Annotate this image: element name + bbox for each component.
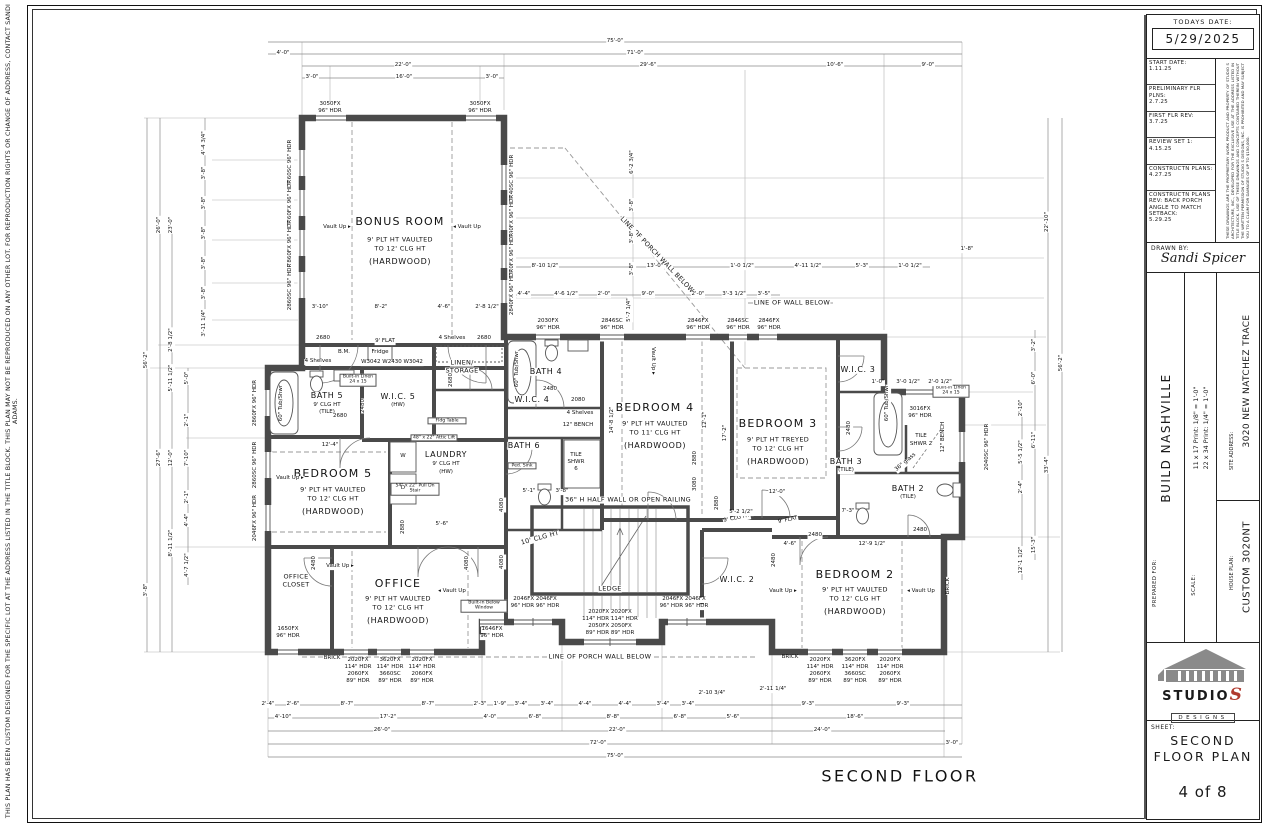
plan-label: 5'-0" <box>185 371 191 385</box>
plan-label: W3042 W2430 W3042 <box>361 360 424 366</box>
plan-label: 2480 <box>808 533 823 539</box>
plan-label: 2860FX 96" HDR <box>288 219 294 266</box>
plan-label: 3'-8" <box>630 230 636 244</box>
plan-label: Fldg Table <box>428 417 467 424</box>
plan-label: 3'-3 1/2" <box>722 292 747 298</box>
plan-label: 96" HDR <box>686 326 710 332</box>
plan-label: 2480 <box>312 556 318 571</box>
plan-label: 2'-8 1/2" <box>169 328 175 353</box>
plan-label: Ped. Sink <box>508 462 537 469</box>
revision-section: START DATE:1.11.25PRELIMINARY FLR PLNS:2… <box>1147 59 1259 243</box>
plan-label: 2860SC 96" HDR <box>288 263 294 311</box>
plan-label: 2050FX 2050FX <box>588 624 633 630</box>
plan-label: 3620FX <box>844 658 866 664</box>
plan-label: 71'-0" <box>626 51 644 57</box>
plan-label: 96" HDR 96" HDR <box>510 604 560 610</box>
plan-label: 9'-0" <box>921 63 935 69</box>
plan-label: Vault Up ▸ <box>769 589 798 595</box>
plan-label: Vault Up ▸ <box>276 476 305 482</box>
plan-label: BEDROOM 5 <box>293 468 373 480</box>
plan-label: 6 <box>574 467 579 473</box>
plan-label: 48" x 22" Attic Lift <box>411 434 458 441</box>
plan-label: 22'-0" <box>608 728 626 734</box>
plan-label: LAUNDRY <box>424 451 467 459</box>
plan-label: 2'-8 1/2" <box>475 305 500 311</box>
plan-label: 3'-10" <box>311 305 329 311</box>
revision-row: START DATE:1.11.25 <box>1147 59 1215 85</box>
plan-label: 2480 <box>543 387 558 393</box>
plan-label: 2880 <box>715 496 721 511</box>
revision-row: PRELIMINARY FLR PLNS:2.7.25 <box>1147 85 1215 111</box>
plan-label: 89" HDR <box>378 679 402 685</box>
plan-label: 75'-0" <box>606 39 624 45</box>
plan-label: 9'-3" <box>801 702 815 708</box>
plan-label: 5'-2 1/2" <box>729 510 754 516</box>
plan-label: 96" HDR <box>757 326 781 332</box>
plan-label: 12'-1 1/2" <box>1019 546 1025 574</box>
plan-label: 2046FX 2046FX <box>662 597 707 603</box>
plan-label: 4'-0" <box>483 715 497 721</box>
plan-label: 29'-6" <box>639 63 657 69</box>
plan-label: 12'-4" <box>321 443 339 449</box>
todays-date-value: 5/29/2025 <box>1152 28 1254 50</box>
plan-label: 2046FX 2046FX <box>513 597 558 603</box>
plan-label: TO 11' CLG HT <box>629 430 681 437</box>
plan-label: 5'-6" <box>435 522 449 528</box>
plan-label: 60" Tub/Shwr <box>279 384 285 421</box>
plan-label: 9' PLT HT VAULTED <box>367 237 434 244</box>
plan-label: 9' FLAT <box>375 339 396 345</box>
plan-label: 3'-8" <box>202 166 208 180</box>
plan-label: BATH 4 <box>529 368 562 376</box>
title-block: TODAYS DATE: 5/29/2025 START DATE:1.11.2… <box>1146 14 1260 820</box>
plan-label: 3'-8" <box>555 489 569 495</box>
plan-label: LINE OF WALL BELOW <box>753 300 830 307</box>
plan-label: TO 12' CLG HT <box>829 596 881 603</box>
plan-label: BATH 2 <box>891 485 924 493</box>
plan-label: CLOSET <box>282 582 310 589</box>
site-plan-cell: 3020 NEW NATCHEZ TRACE SITE ADDRESS: CUS… <box>1217 273 1259 643</box>
plan-label: 22'-0" <box>394 63 412 69</box>
plan-label: 4'-7 1/2" <box>185 553 191 578</box>
plan-label: SECOND FLOOR <box>821 769 979 786</box>
plan-label: 72'-0" <box>589 741 607 747</box>
plan-label: BEDROOM 2 <box>815 569 895 581</box>
plan-label: 4080 <box>500 498 506 513</box>
plan-label: 12'-1" <box>703 411 709 429</box>
plan-label: W.I.C. 2 <box>719 576 755 584</box>
plan-label: 22'-10" <box>1045 211 1051 232</box>
plan-label: 6'-0" <box>1032 371 1038 385</box>
plan-label: SHWR 2 <box>909 442 932 448</box>
plan-label: BRICK <box>781 655 799 661</box>
plan-label: 26'-0" <box>373 728 391 734</box>
logo-house-icon <box>1158 643 1248 683</box>
plan-label: 96" HDR <box>480 634 504 640</box>
plan-label: 17'-2" <box>379 715 397 721</box>
plan-label: 13'-0" <box>646 264 664 270</box>
plan-label: 9' PLT HT VAULTED <box>822 587 889 594</box>
plan-label: 114" HDR <box>408 665 436 671</box>
plan-label: 2846FX <box>687 319 709 325</box>
plan-label: 1650FX <box>277 627 299 633</box>
plan-label: 12" BENCH <box>941 421 947 453</box>
plan-label: 2046FX 96" HDR <box>253 494 259 541</box>
plan-label: 3'-0" <box>485 75 499 81</box>
plan-label: 3660SC <box>379 672 401 678</box>
plan-label: 8'-11 1/2" <box>169 529 175 557</box>
plan-label: 36" H HALF WALL OR OPEN RAILING <box>565 497 692 504</box>
plan-label: 3'-11 1/4" <box>202 309 208 337</box>
plan-label: Vault Up ▸ <box>326 564 355 570</box>
plan-label: (HARDWOOD) <box>368 258 431 266</box>
plan-label: 2680 <box>316 336 331 342</box>
scale-label: SCALE: <box>1191 574 1197 595</box>
plan-label: 27'-6" <box>157 449 163 467</box>
todays-date-label: TODAYS DATE: <box>1147 18 1259 26</box>
site-address-cell: 3020 NEW NATCHEZ TRACE SITE ADDRESS: <box>1217 273 1259 501</box>
plan-label: 1'-0" <box>871 380 885 386</box>
plan-label: 2480 <box>847 421 853 436</box>
plan-label: 2840FX 96" HDR <box>510 268 516 315</box>
plan-label: OFFICE <box>283 574 309 581</box>
plan-label: Vault Up ▸ <box>649 347 655 376</box>
revision-row: FIRST FLR REV:3.7.25 <box>1147 112 1215 138</box>
plan-label: 96" HDR <box>318 109 342 115</box>
plan-label: (HW) <box>391 403 406 409</box>
plan-label: 2846SC <box>601 319 623 325</box>
plan-label: 89" HDR 89" HDR <box>585 631 635 637</box>
plan-label: ◂ Vault Up <box>907 589 936 595</box>
plan-label: 4'-10" <box>274 715 292 721</box>
plan-label: 2020FX 2020FX <box>588 610 633 616</box>
plan-label: 4'-6 1/2" <box>554 292 579 298</box>
plan-label: 2'-1" <box>185 413 191 427</box>
plan-label: 9' CLG HT <box>432 462 460 468</box>
plan-label: 2480 <box>361 399 367 414</box>
plan-label: 60" Tub/Shwr <box>515 350 521 387</box>
plan-label: 4'-6" <box>437 305 451 311</box>
plan-label: 8'-8" <box>606 715 620 721</box>
plan-label: W.I.C. 4 <box>514 396 550 404</box>
plan-label: 9' CLG HT <box>313 403 341 409</box>
plan-label: 2'-4" <box>1019 480 1025 494</box>
project-info-section: BUILD NASHVILLE PREPARED FOR: 11 x 17 Pr… <box>1147 273 1259 643</box>
plan-label: OFFICE <box>374 578 421 590</box>
plan-label: 10'-6" <box>826 63 844 69</box>
plan-label: 15'-3" <box>1032 536 1038 554</box>
plan-label: 6'-2 3/4" <box>630 150 636 175</box>
revision-row: REVIEW SET 1:4.15.25 <box>1147 138 1215 164</box>
plan-label: 2020FX <box>809 658 831 664</box>
plan-label: 18'-6" <box>846 715 864 721</box>
plan-label: 3'-8" <box>202 226 208 240</box>
plan-label: 4'-4 3/4" <box>202 131 208 156</box>
plan-label: 2'-1" <box>185 490 191 504</box>
plan-label: 1'-8" <box>960 247 974 253</box>
plan-label: LINE OF PORCH WALL BELOW <box>619 215 696 294</box>
sheet-section: SHEET: SECOND FLOOR PLAN 4 of 8 <box>1147 721 1259 819</box>
plan-label: 2'-6" <box>286 702 300 708</box>
plan-label: 4 Shelves <box>566 411 594 417</box>
plan-label: 5'-7 1/4" <box>627 298 633 323</box>
plan-label: 9' FLAT <box>777 516 799 526</box>
plan-label: 9' PLT HT VAULTED <box>300 487 367 494</box>
plan-label: Built-in Linen 24 x 15 <box>340 374 377 387</box>
plan-label: (HARDWOOD) <box>366 617 429 625</box>
plan-label: 3'-0" <box>305 75 319 81</box>
plan-label: 12'-0" <box>169 449 175 467</box>
plan-label: W.I.C. 3 <box>840 366 876 374</box>
plan-label: BATH 5 <box>310 392 343 400</box>
plan-label: 2680 <box>449 373 455 388</box>
plan-label: 114" HDR <box>876 665 904 671</box>
plan-label: 2480 <box>913 528 928 534</box>
plan-label: 3'-4" <box>681 702 695 708</box>
plan-label: 2'-3" <box>473 702 487 708</box>
plan-label: 2080 <box>571 398 586 404</box>
prepared-for-cell: BUILD NASHVILLE PREPARED FOR: <box>1147 273 1185 643</box>
plan-label: 3660SC <box>844 672 866 678</box>
copyright-note: THESE DRAWINGS ARE THE PROPRIETARY WORK … <box>1225 63 1249 239</box>
plan-label: B.M. <box>337 350 350 356</box>
plan-label: 89" HDR <box>843 679 867 685</box>
plan-label: TO 12' CLG HT <box>307 496 359 503</box>
plan-label: LINE OF PORCH WALL BELOW <box>548 654 652 661</box>
plan-label: 3'-8" <box>630 198 636 212</box>
plan-label: BEDROOM 3 <box>738 418 818 430</box>
plan-label: 24'-0" <box>813 728 831 734</box>
drawn-by-name: Sandi Spicer <box>1147 251 1259 266</box>
plan-label: 2060FX <box>411 672 433 678</box>
plan-label: 12'-0" <box>768 490 786 496</box>
plan-label: 5'-1" <box>522 489 536 495</box>
revision-row: CONSTRUCTN PLANS:4.27.25 <box>1147 165 1215 191</box>
plan-label: SHWR <box>567 460 585 466</box>
plan-label: 23'-0" <box>169 216 175 234</box>
plan-label: 96" HDR <box>536 326 560 332</box>
plan-label: 26'-0" <box>157 216 163 234</box>
plan-label: 3'-8" <box>144 583 150 597</box>
plan-label: 14'-8 1/2" <box>610 406 616 434</box>
plan-label: 54" x 22" Pull Dn Stair <box>391 483 440 496</box>
scale-line1: 11 x 17 Print: 1/8" = 1'-0" <box>1192 387 1200 470</box>
plan-label: 2'-10" <box>1019 399 1025 417</box>
plan-label: W.I.C. 5 <box>380 393 416 401</box>
plan-label: BEDROOM 4 <box>615 402 695 414</box>
plan-label: 4080 <box>465 556 471 571</box>
plan-label: 36" glass <box>894 452 918 473</box>
plan-label: 114" HDR 114" HDR <box>582 617 639 623</box>
plan-label: 2'-0" <box>597 292 611 298</box>
sheet-name: SECOND FLOOR PLAN <box>1147 733 1259 764</box>
plan-label: 12" BENCH <box>562 423 594 429</box>
logo-s-letter: S <box>1230 685 1244 705</box>
site-address-label: SITE ADDRESS: <box>1229 432 1235 470</box>
drawn-by-section: DRAWN BY: Sandi Spicer <box>1147 243 1259 273</box>
todays-date-section: TODAYS DATE: 5/29/2025 <box>1147 15 1259 59</box>
plan-label: 3'-4" <box>656 702 670 708</box>
plan-label: TO 12' CLG HT <box>752 446 804 453</box>
plan-label: 2846FX <box>758 319 780 325</box>
plan-label: TO 12' CLG HT <box>374 246 426 253</box>
prepared-for-label: PREPARED FOR: <box>1152 559 1158 607</box>
plan-label: 4'-4" <box>578 702 592 708</box>
plan-label: 75'-0" <box>606 754 624 760</box>
plan-label: 114" HDR <box>841 665 869 671</box>
house-plan-value: CUSTOM 3020NT <box>1242 521 1253 613</box>
plan-label: 3'-4" <box>540 702 554 708</box>
plan-label: (HARDWOOD) <box>823 608 886 616</box>
plan-label: (HW) <box>439 470 454 476</box>
plan-label: 3'-8" <box>202 196 208 210</box>
scale-cell: 11 x 17 Print: 1/8" = 1'-0" 22 x 34 Prin… <box>1185 273 1217 643</box>
plan-label: 96" HDR <box>468 109 492 115</box>
plan-label: 4080 <box>500 555 506 570</box>
plan-label: 114" HDR <box>806 665 834 671</box>
plan-label: 2680 <box>333 414 348 420</box>
plan-label: 96" HDR <box>600 326 624 332</box>
plan-label: 96" HDR 96" HDR <box>659 604 709 610</box>
plan-label: 2'-10 3/4" <box>698 691 726 697</box>
plan-label: Vault Up ▸ <box>323 225 352 231</box>
sheet-label: SHEET: <box>1151 724 1175 731</box>
plan-label: 2860FX 96" HDR <box>253 379 259 426</box>
plan-label: (HARDWOOD) <box>623 442 686 450</box>
plan-label: TO 12' CLG HT <box>372 605 424 612</box>
plan-label: 9'-0" <box>641 292 655 298</box>
plan-label: 2880 <box>693 451 699 466</box>
plan-label: 2680 <box>477 336 492 342</box>
plan-label: 9' PLT HT VAULTED <box>622 421 689 428</box>
plan-label: 2'-0 1/2" <box>928 380 953 386</box>
plan-label: 2846SC <box>727 319 749 325</box>
plan-label: 4'-4" <box>185 513 191 527</box>
logo-studio-text: STUDIOS <box>1147 687 1259 704</box>
plan-label: 6'-8" <box>673 715 687 721</box>
plan-label: 3'-0 1/2" <box>896 380 921 386</box>
plan-label: 2040SC 96" HDR <box>985 423 991 471</box>
plan-label: 12'-9 1/2" <box>858 542 886 548</box>
plan-label: 8'-7" <box>340 702 354 708</box>
plan-label: 3'-5" <box>757 292 771 298</box>
plan-label: 3080 <box>693 477 699 492</box>
plan-label: 5'-3" <box>855 264 869 270</box>
plan-label: 2060FX <box>879 672 901 678</box>
plan-labels: SECOND FLOORBONUS ROOM9' PLT HT VAULTEDT… <box>0 0 1280 828</box>
plan-label: 2020FX <box>879 658 901 664</box>
plan-label: 89" HDR <box>878 679 902 685</box>
plan-label: LEDGE <box>598 586 622 593</box>
plan-label: 96" HDR <box>726 326 750 332</box>
plan-label: ◂ Vault Up <box>453 225 482 231</box>
plan-label: ◂ Vault Up <box>438 589 467 595</box>
plan-label: 96" HDR <box>908 414 932 420</box>
sheet-number: 4 of 8 <box>1147 783 1259 801</box>
plan-label: 8'-2" <box>374 305 388 311</box>
plan-label: BRICK <box>946 577 952 595</box>
plan-label: 1'-9" <box>493 702 507 708</box>
plan-label: 2880 <box>401 520 407 535</box>
plan-label: 8'-10 1/2" <box>531 264 559 270</box>
plan-label: 2020FX <box>411 658 433 664</box>
revision-list: START DATE:1.11.25PRELIMINARY FLR PLNS:2… <box>1147 59 1216 242</box>
plan-label: 8'-7" <box>421 702 435 708</box>
plan-label: 9' PLT HT VAULTED <box>365 596 432 603</box>
plan-label: 56'-2" <box>144 351 150 369</box>
plan-label: 1'-0 1/2" <box>730 264 755 270</box>
plan-label: (HARDWOOD) <box>746 458 809 466</box>
plan-label: 89" HDR <box>346 679 370 685</box>
scale-line2: 22 x 34 Print: 1/4" = 1'-0" <box>1202 387 1210 470</box>
plan-label: Fridge <box>371 350 389 356</box>
plan-label: 6'-8" <box>528 715 542 721</box>
plan-label: (TILE) <box>838 468 855 474</box>
plan-label: W <box>400 454 406 460</box>
floor-plan-sheet: THIS PLAN HAS BEEN CUSTOM DESIGNED FOR T… <box>0 0 1280 828</box>
plan-label: 60" Tub/Shwr <box>885 384 891 421</box>
plan-label: 3016FX <box>909 407 931 413</box>
plan-label: Built-in Below Window <box>461 600 508 613</box>
prepared-for-value: BUILD NASHVILLE <box>1159 373 1173 502</box>
plan-label: LINEN/ <box>450 360 474 367</box>
plan-label: 89" HDR <box>808 679 832 685</box>
plan-label: 2020FX <box>347 658 369 664</box>
plan-label: 2030FX <box>537 319 559 325</box>
plan-label: 4'-11 1/2" <box>794 264 822 270</box>
plan-label: 10' CLG HT <box>520 530 561 547</box>
plan-label: 3'-8" <box>202 256 208 270</box>
plan-label: 3050FX <box>469 102 491 108</box>
studio-s-logo: STUDIOS DESIGNS <box>1147 643 1259 721</box>
plan-label: 3'-0" <box>945 741 959 747</box>
plan-label: Built-in Linen 24 x 15 <box>933 385 970 398</box>
plan-label: 2'-4" <box>261 702 275 708</box>
plan-label: 9'-3" <box>896 702 910 708</box>
plan-label: 4 Shelves <box>438 336 466 342</box>
plan-label: 5'-6" <box>726 715 740 721</box>
plan-label: 89" HDR <box>410 679 434 685</box>
plan-label: 16'-0" <box>395 75 413 81</box>
plan-label: 5'-11 1/2" <box>169 364 175 392</box>
site-address-value: 3020 NEW NATCHEZ TRACE <box>1242 314 1252 447</box>
plan-label: 7'-3" <box>841 509 855 515</box>
revision-row: CONSTRUCTN PLANS REV: BACK PORCH ANGLE T… <box>1147 191 1215 242</box>
plan-label: (TILE) <box>900 495 917 501</box>
plan-label: 96" HDR <box>276 634 300 640</box>
plan-label: 2480 <box>772 553 778 568</box>
plan-label: 4'-4" <box>618 702 632 708</box>
plan-label: 2060FX <box>347 672 369 678</box>
plan-label: 4 Shelves <box>304 359 332 365</box>
plan-label: 2060FX <box>809 672 831 678</box>
plan-label: 114" HDR <box>344 665 372 671</box>
plan-label: BATH 6 <box>507 442 540 450</box>
plan-label: 56'-2" <box>1059 354 1065 372</box>
plan-label: 9' PLT HT TREYED <box>746 437 809 444</box>
plan-label: BRICK <box>323 656 341 662</box>
plan-label: 1'-0 1/2" <box>898 264 923 270</box>
plan-label: 1646FX <box>481 627 503 633</box>
plan-label: 2860SC 96" HDR <box>253 441 259 489</box>
plan-label: 3'-4" <box>514 702 528 708</box>
plan-label: 3'-8" <box>202 286 208 300</box>
plan-label: 7'-10" <box>185 449 191 467</box>
plan-label: TILE <box>915 434 928 440</box>
plan-label: 2'-0" <box>691 292 705 298</box>
plan-label: 17'-2" <box>723 424 729 442</box>
plan-label: 33'-4" <box>1045 456 1051 474</box>
